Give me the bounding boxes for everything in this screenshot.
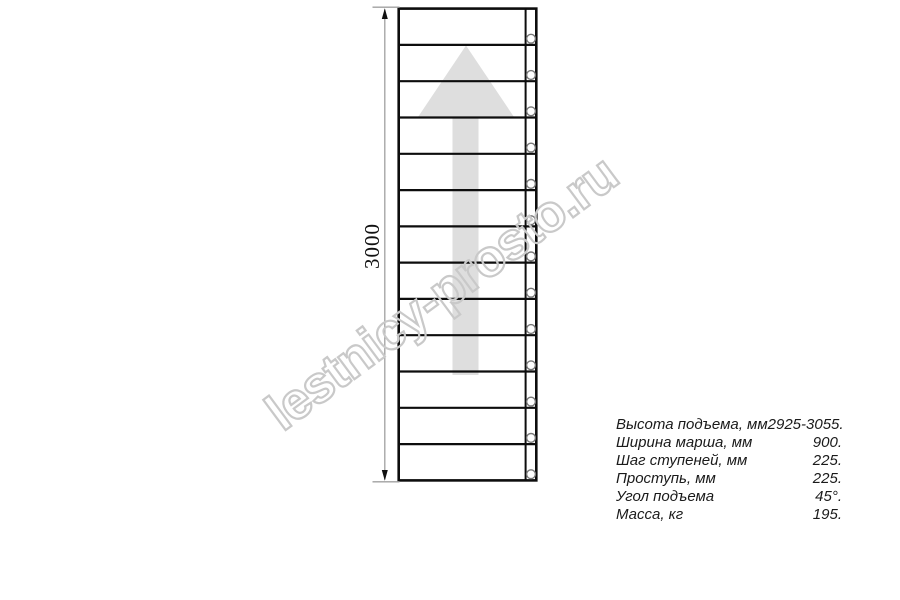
spec-value: 195.: [813, 506, 842, 524]
spec-label: Высота подъема, мм: [616, 416, 768, 434]
spec-value: 900.: [813, 434, 842, 452]
dimension-arrowhead-bottom: [382, 470, 388, 481]
tread-hole-icon: [527, 397, 536, 406]
specs-table: Высота подъема, мм2925-3055.Ширина марша…: [616, 416, 842, 524]
spec-value: 225.: [813, 470, 842, 488]
tread-hole-icon: [527, 180, 536, 189]
spec-row: Высота подъема, мм2925-3055.: [616, 416, 842, 434]
tread-hole-icon: [527, 34, 536, 43]
spec-label: Ширина марша, мм: [616, 434, 752, 452]
spec-label: Проступь, мм: [616, 470, 716, 488]
spec-row: Ширина марша, мм900.: [616, 434, 842, 452]
spec-value: 45°.: [815, 488, 842, 506]
dimension-arrowhead-top: [382, 8, 388, 19]
spec-label: Угол подъема: [616, 488, 714, 506]
spec-row: Масса, кг195.: [616, 506, 842, 524]
tread-hole-icon: [527, 470, 536, 479]
spec-row: Шаг ступеней, мм225.: [616, 452, 842, 470]
tread-hole-icon: [527, 434, 536, 443]
spec-label: Масса, кг: [616, 506, 683, 524]
tread-hole-icon: [527, 288, 536, 297]
spec-label: Шаг ступеней, мм: [616, 452, 747, 470]
tread-hole-icon: [527, 143, 536, 152]
tread-hole-icon: [527, 361, 536, 370]
technical-drawing-page: 3000 lestnicy-prosto.ru Высота подъема, …: [0, 0, 900, 600]
spec-value: 225.: [813, 452, 842, 470]
dimension-label: 3000: [360, 223, 384, 269]
tread-hole-icon: [527, 71, 536, 80]
tread-hole-icon: [527, 325, 536, 334]
height-dimension: 3000: [360, 7, 400, 482]
spec-row: Проступь, мм225.: [616, 470, 842, 488]
spec-row: Угол подъема45°.: [616, 488, 842, 506]
spec-value: 2925-3055.: [768, 416, 844, 434]
tread-hole-icon: [527, 107, 536, 116]
